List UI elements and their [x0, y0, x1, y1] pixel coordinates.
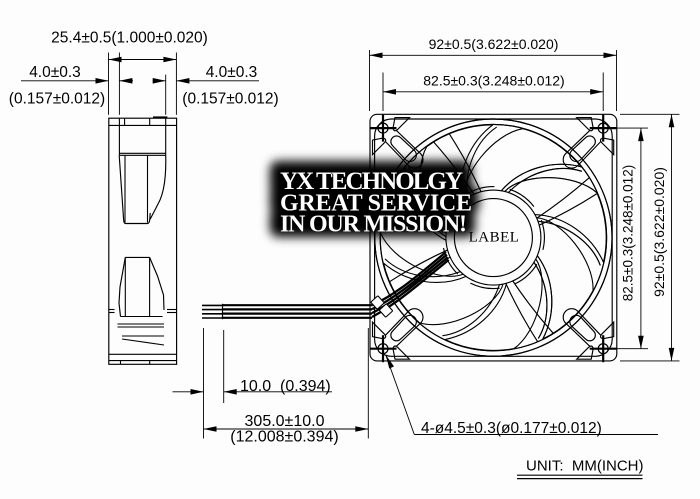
svg-text:LABEL: LABEL: [469, 230, 520, 246]
svg-text:IN OUR MISSION!: IN OUR MISSION!: [280, 212, 467, 238]
svg-text:82.5±0.3(3.248±0.012): 82.5±0.3(3.248±0.012): [423, 73, 564, 89]
svg-text:4-ø4.5±0.3(ø0.177±0.012): 4-ø4.5±0.3(ø0.177±0.012): [421, 420, 602, 437]
svg-text:82.5±0.3(3.248±0.012): 82.5±0.3(3.248±0.012): [621, 165, 636, 301]
svg-text:10.0 (0.394): 10.0 (0.394): [240, 378, 331, 395]
svg-text:(12.008±0.394): (12.008±0.394): [230, 429, 338, 446]
svg-text:(0.157±0.012): (0.157±0.012): [182, 91, 278, 108]
svg-text:4.0±0.3: 4.0±0.3: [206, 64, 258, 81]
svg-text:92±0.5(3.622±0.020): 92±0.5(3.622±0.020): [651, 167, 667, 297]
svg-text:305.0±10.0: 305.0±10.0: [245, 413, 325, 430]
svg-text:UNIT: MM(INCH): UNIT: MM(INCH): [526, 458, 643, 475]
svg-text:4.0±0.3: 4.0±0.3: [29, 64, 81, 81]
svg-text:25.4±0.5(1.000±0.020): 25.4±0.5(1.000±0.020): [51, 30, 208, 47]
svg-text:(0.157±0.012): (0.157±0.012): [9, 91, 105, 108]
svg-text:92±0.5(3.622±0.020): 92±0.5(3.622±0.020): [429, 36, 559, 52]
